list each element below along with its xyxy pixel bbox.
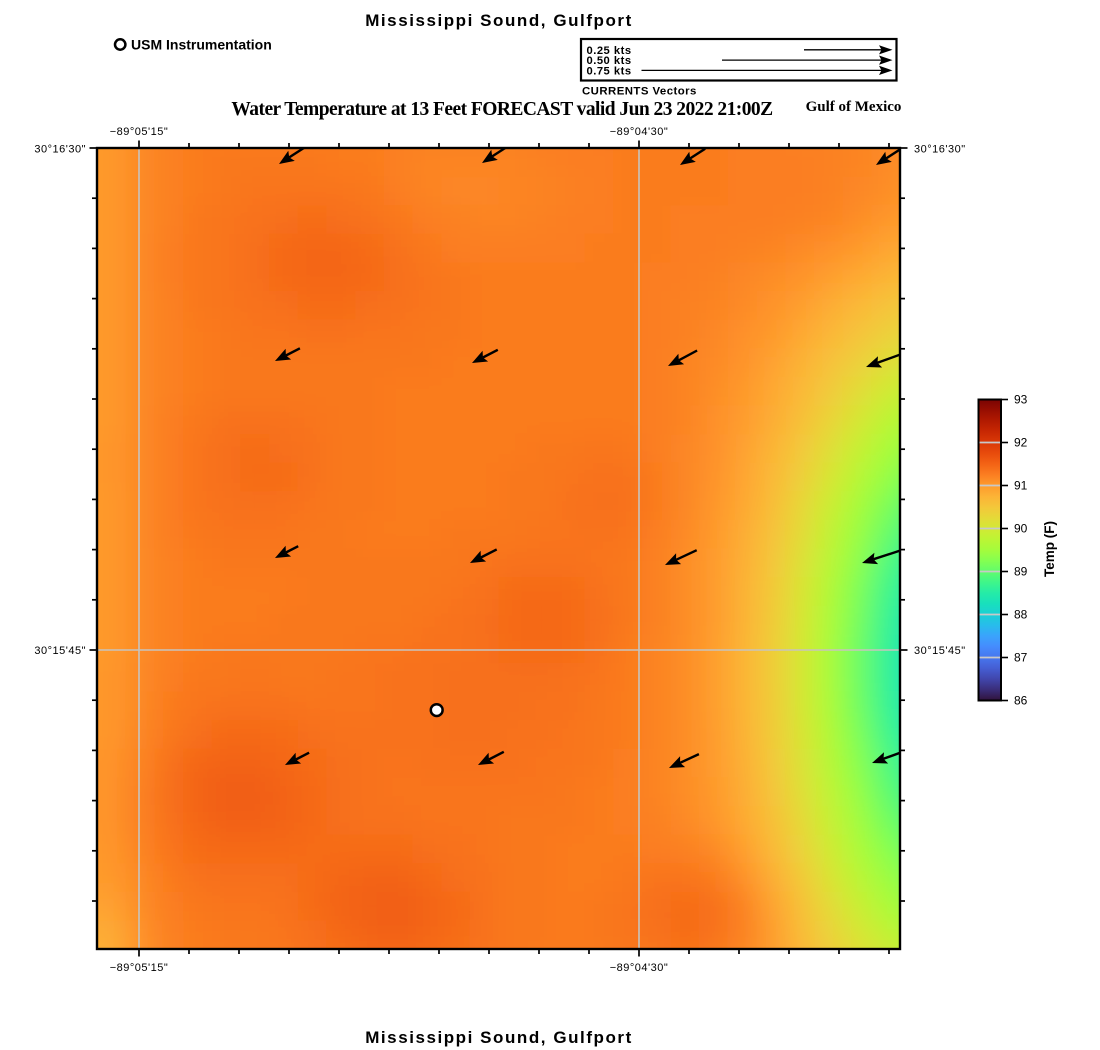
svg-text:93: 93 xyxy=(1014,393,1028,407)
svg-text:89: 89 xyxy=(1014,565,1028,579)
svg-text:Mississippi Sound, Gulfport: Mississippi Sound, Gulfport xyxy=(365,11,633,30)
svg-text:CURRENTS Vectors: CURRENTS Vectors xyxy=(582,86,697,98)
svg-text:−89°04'30": −89°04'30" xyxy=(610,962,669,974)
svg-text:−89°05'15": −89°05'15" xyxy=(110,126,169,138)
svg-text:30°15'45": 30°15'45" xyxy=(914,645,966,657)
svg-text:88: 88 xyxy=(1014,608,1028,622)
svg-text:87: 87 xyxy=(1014,651,1028,665)
svg-text:92: 92 xyxy=(1014,436,1028,450)
svg-text:Mississippi Sound, Gulfport: Mississippi Sound, Gulfport xyxy=(365,1028,633,1047)
svg-text:USM Instrumentation: USM Instrumentation xyxy=(131,37,272,53)
svg-text:30°15'45": 30°15'45" xyxy=(34,645,86,657)
svg-text:30°16'30": 30°16'30" xyxy=(34,144,86,156)
svg-text:86: 86 xyxy=(1014,694,1028,708)
svg-text:−89°04'30": −89°04'30" xyxy=(610,126,669,138)
svg-text:90: 90 xyxy=(1014,522,1028,536)
svg-text:Temp (F): Temp (F) xyxy=(1042,521,1057,577)
svg-text:−89°05'15": −89°05'15" xyxy=(110,962,169,974)
svg-text:30°16'30": 30°16'30" xyxy=(914,144,966,156)
svg-text:Gulf of Mexico: Gulf of Mexico xyxy=(806,99,902,115)
svg-text:Water Temperature at 13 Feet F: Water Temperature at 13 Feet FORECAST va… xyxy=(231,99,773,120)
svg-text:91: 91 xyxy=(1014,479,1028,493)
svg-text:0.75 kts: 0.75 kts xyxy=(587,66,632,78)
